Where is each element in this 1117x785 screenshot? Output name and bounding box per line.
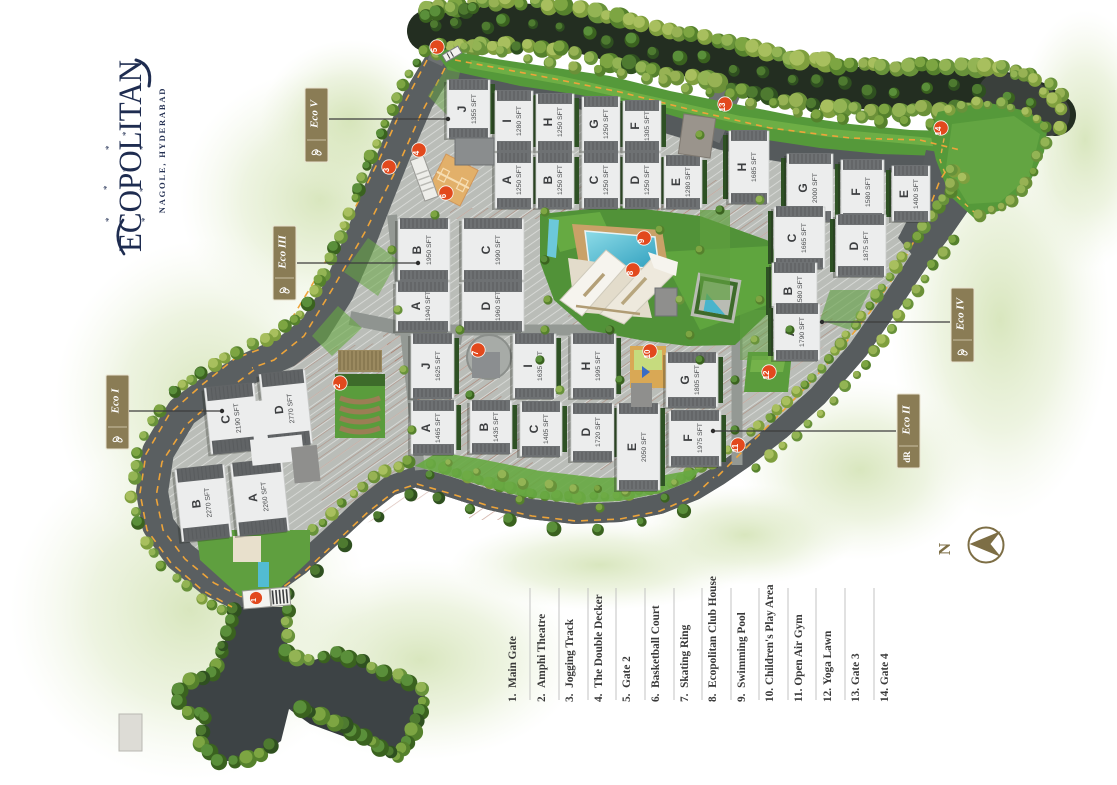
svg-text:*: *	[140, 217, 150, 222]
svg-text:D: D	[579, 427, 593, 436]
svg-text:7: 7	[471, 350, 480, 355]
svg-text:*: *	[104, 217, 114, 222]
svg-text:2. Amphi Theatre: 2. Amphi Theatre	[536, 614, 548, 702]
svg-text:Eco III: Eco III	[277, 235, 289, 270]
svg-text:F: F	[628, 122, 642, 129]
svg-text:1435 SFT: 1435 SFT	[493, 412, 500, 442]
svg-text:H: H	[541, 118, 555, 127]
svg-text:E: E	[625, 443, 639, 451]
svg-text:C: C	[479, 245, 493, 254]
svg-text:13. Gate 3: 13. Gate 3	[850, 653, 862, 702]
svg-text:13: 13	[718, 102, 727, 111]
svg-text:1250 SFT: 1250 SFT	[557, 165, 564, 195]
svg-text:1280 SFT: 1280 SFT	[516, 106, 523, 136]
svg-text:C: C	[218, 414, 233, 424]
svg-text:B: B	[477, 422, 491, 431]
svg-text:E: E	[669, 178, 683, 186]
svg-text:1625 SFT: 1625 SFT	[435, 351, 442, 381]
svg-text:1250 SFT: 1250 SFT	[603, 109, 610, 139]
svg-text:1950 SFT: 1950 SFT	[426, 235, 433, 265]
svg-text:1465 SFT: 1465 SFT	[435, 413, 442, 443]
svg-text:1250 SFT: 1250 SFT	[516, 165, 523, 195]
svg-text:C: C	[785, 233, 799, 242]
svg-text:1305 SFT: 1305 SFT	[644, 111, 651, 141]
svg-text:A: A	[419, 423, 433, 432]
svg-text:8: 8	[626, 270, 635, 275]
svg-text:1685 SFT: 1685 SFT	[751, 152, 758, 182]
svg-text:H: H	[735, 163, 749, 172]
svg-text:Eco II: Eco II	[901, 405, 913, 436]
svg-text:E: E	[897, 190, 911, 198]
svg-text:1580 SFT: 1580 SFT	[797, 276, 804, 306]
svg-text:11. Open Air Gym: 11. Open Air Gym	[793, 614, 805, 702]
svg-text:Eco V: Eco V	[309, 98, 321, 128]
svg-text:I: I	[521, 364, 535, 367]
svg-text:8. Ecopolitan Club House: 8. Ecopolitan Club House	[707, 576, 719, 702]
svg-text:3. Jogging Track: 3. Jogging Track	[564, 618, 576, 702]
svg-text:14: 14	[934, 126, 943, 135]
svg-text:B: B	[410, 245, 424, 254]
svg-text:*: *	[138, 187, 148, 192]
svg-text:*: *	[102, 185, 112, 190]
svg-text:A: A	[500, 175, 514, 184]
svg-text:2000 SFT: 2000 SFT	[812, 173, 819, 203]
svg-text:3: 3	[382, 167, 391, 172]
svg-text:5. Gate 2: 5. Gate 2	[621, 656, 633, 702]
svg-text:12. Yoga Lawn: 12. Yoga Lawn	[822, 630, 834, 702]
svg-text:N: N	[935, 542, 954, 555]
svg-text:1975 SFT: 1975 SFT	[697, 423, 704, 453]
svg-text:C: C	[587, 175, 601, 184]
svg-text:J: J	[419, 363, 433, 370]
svg-text:9. Swimming Pool: 9. Swimming Pool	[736, 612, 748, 702]
svg-text:6. Basketball Court: 6. Basketball Court	[650, 605, 662, 702]
svg-text:12: 12	[762, 370, 771, 379]
svg-text:11: 11	[731, 443, 740, 452]
svg-text:5: 5	[430, 47, 439, 52]
svg-text:1940 SFT: 1940 SFT	[425, 291, 432, 321]
svg-text:1355 SFT: 1355 SFT	[471, 94, 478, 124]
svg-text:dR: dR	[902, 451, 912, 463]
svg-text:1250 SFT: 1250 SFT	[603, 165, 610, 195]
svg-text:C: C	[527, 424, 541, 433]
svg-text:*: *	[104, 145, 114, 150]
svg-text:B: B	[781, 286, 795, 295]
svg-text:14. Gate 4: 14. Gate 4	[879, 653, 891, 702]
svg-text:B: B	[541, 175, 555, 184]
svg-text:1960 SFT: 1960 SFT	[495, 291, 502, 321]
svg-text:1280 SFT: 1280 SFT	[685, 167, 692, 197]
svg-text:1: 1	[251, 598, 258, 602]
svg-text:10: 10	[643, 349, 652, 358]
svg-text:9: 9	[637, 238, 646, 243]
svg-text:7. Skating Ring: 7. Skating Ring	[679, 624, 691, 702]
svg-text:1580 SFT: 1580 SFT	[865, 177, 872, 207]
svg-text:*: *	[138, 145, 148, 150]
svg-text:G: G	[678, 375, 692, 384]
svg-text:H: H	[579, 362, 593, 371]
svg-text:4. The Double Decker: 4. The Double Decker	[593, 594, 605, 702]
svg-text:ECOPOLITAN: ECOPOLITAN	[113, 60, 149, 252]
svg-text:G: G	[587, 119, 601, 128]
svg-text:2050 SFT: 2050 SFT	[641, 432, 648, 462]
svg-text:A: A	[246, 493, 261, 503]
svg-text:*: *	[121, 131, 131, 136]
svg-text:1720 SFT: 1720 SFT	[595, 417, 602, 447]
svg-text:D: D	[628, 175, 642, 184]
svg-text:1665 SFT: 1665 SFT	[801, 223, 808, 253]
svg-text:B: B	[189, 498, 204, 508]
svg-text:A: A	[409, 301, 423, 310]
svg-text:1995 SFT: 1995 SFT	[595, 351, 602, 381]
svg-text:F: F	[681, 434, 695, 441]
svg-text:6: 6	[439, 193, 448, 198]
svg-text:NAGOLE, HYDERABAD: NAGOLE, HYDERABAD	[157, 87, 167, 213]
svg-text:D: D	[271, 404, 286, 414]
svg-text:2: 2	[333, 383, 342, 388]
svg-text:1250 SFT: 1250 SFT	[644, 165, 651, 195]
svg-text:J: J	[455, 106, 469, 113]
svg-text:F: F	[849, 188, 863, 195]
svg-text:I: I	[500, 119, 514, 122]
svg-text:1250 SFT: 1250 SFT	[557, 107, 564, 137]
svg-text:1990 SFT: 1990 SFT	[495, 235, 502, 265]
svg-text:G: G	[796, 183, 810, 192]
svg-text:1790 SFT: 1790 SFT	[799, 317, 806, 347]
svg-text:Eco IV: Eco IV	[955, 296, 967, 331]
svg-text:1805 SFT: 1805 SFT	[694, 365, 701, 395]
svg-text:*: *	[121, 167, 131, 172]
svg-text:10. Children's Play Area: 10. Children's Play Area	[764, 584, 776, 702]
svg-text:Eco I: Eco I	[110, 388, 122, 414]
svg-text:D: D	[847, 241, 861, 250]
svg-text:D: D	[479, 301, 493, 310]
svg-text:4: 4	[412, 150, 421, 155]
svg-text:1. Main Gate: 1. Main Gate	[507, 636, 519, 702]
svg-text:1400 SFT: 1400 SFT	[913, 179, 920, 209]
svg-text:1875 SFT: 1875 SFT	[863, 231, 870, 261]
svg-text:1405 SFT: 1405 SFT	[543, 414, 550, 444]
